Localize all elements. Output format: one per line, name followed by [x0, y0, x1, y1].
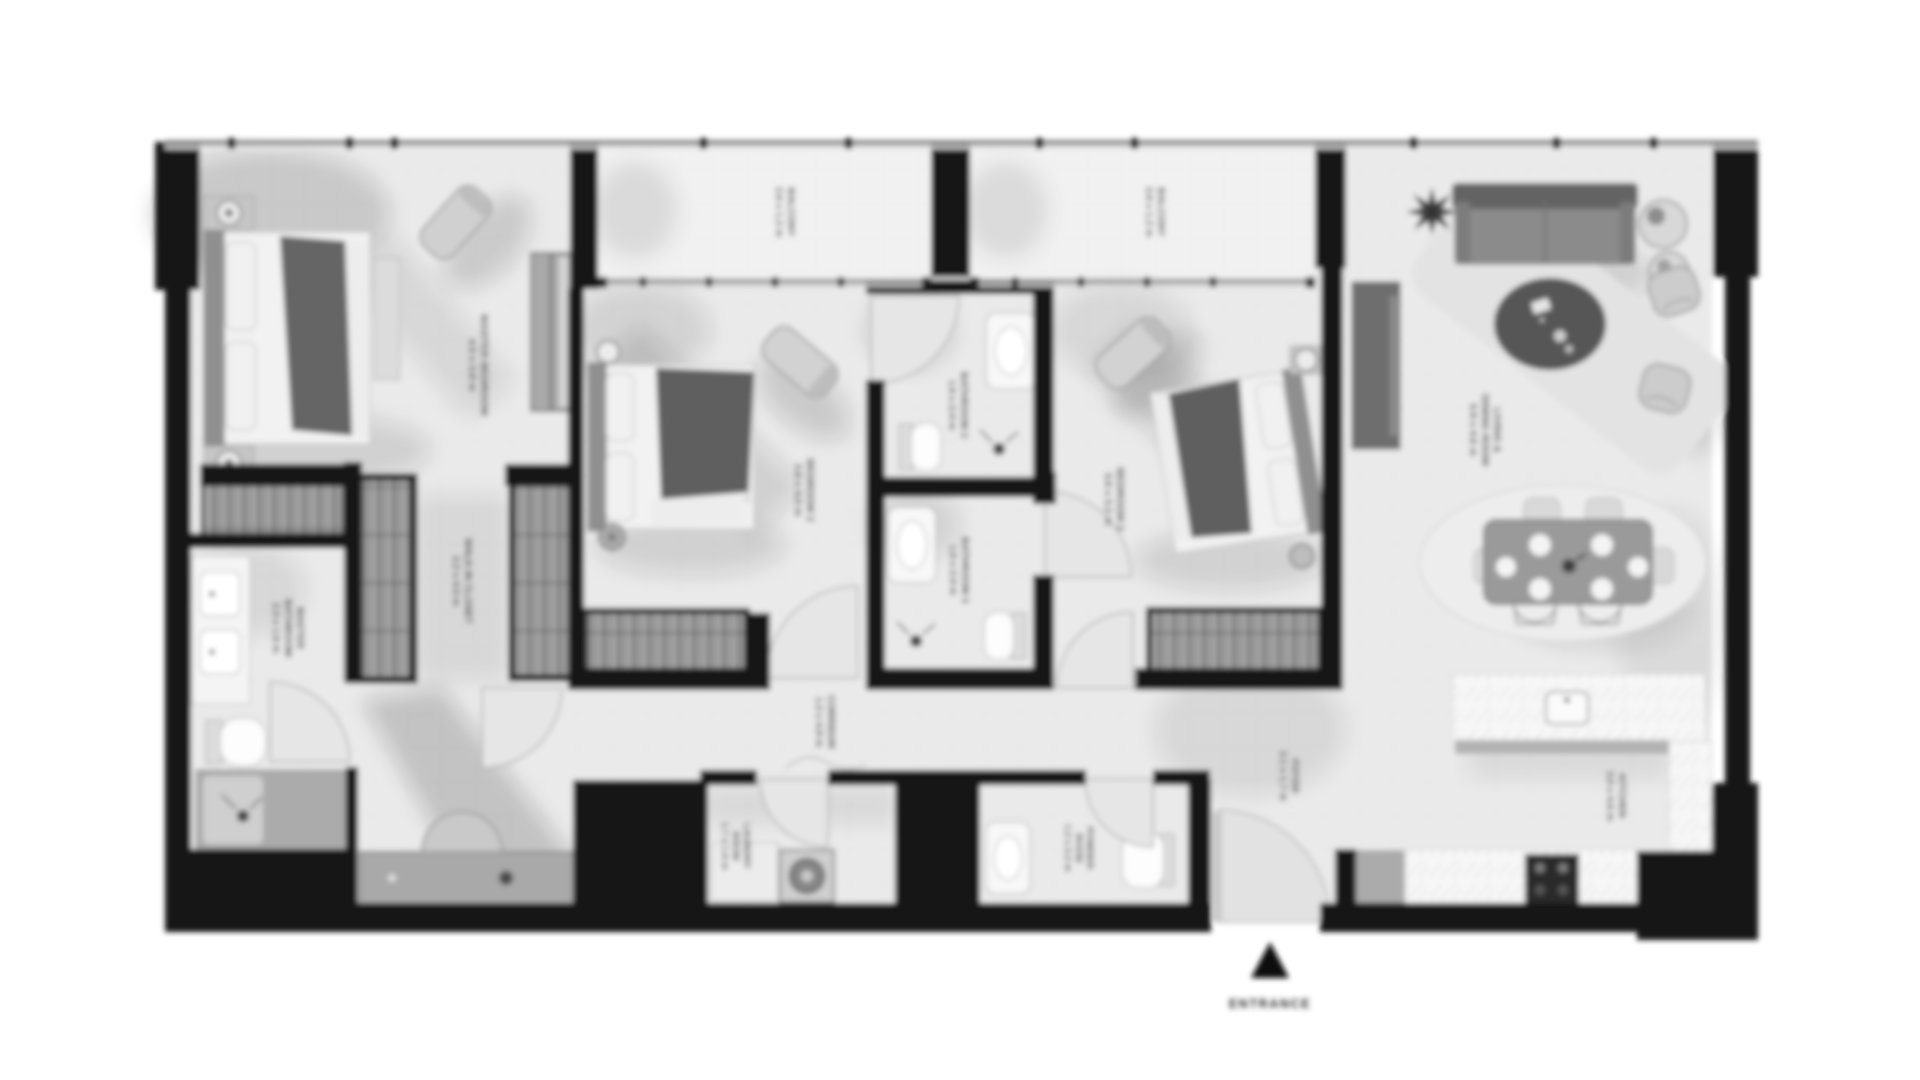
svg-text:BALCONY2.6 x 1.2 m: BALCONY2.6 x 1.2 m — [773, 187, 796, 238]
svg-text:BEDROOM 23.6 x 4.0 m: BEDROOM 23.6 x 4.0 m — [792, 458, 816, 522]
svg-text:BALCONY2.6 x 1.2 m: BALCONY2.6 x 1.2 m — [1143, 187, 1166, 238]
svg-text:KITCHEN3.0 x 4.6 m: KITCHEN3.0 x 4.6 m — [1604, 771, 1627, 822]
svg-text:BATHROOM 21.6 x 2.4 m: BATHROOM 21.6 x 2.4 m — [946, 372, 969, 439]
svg-text:ENTRANCE: ENTRANCE — [1229, 997, 1311, 1011]
svg-text:BATHROOM 31.6 x 2.4 m: BATHROOM 31.6 x 2.4 m — [947, 537, 970, 604]
svg-text:BEDROOM 33.6 x 3.2 m: BEDROOM 33.6 x 3.2 m — [1102, 467, 1126, 531]
svg-text:CORRIDOR1.2 x 4.9 m: CORRIDOR1.2 x 4.9 m — [813, 695, 836, 750]
svg-text:MASTERBATHROOM2.3 x 1.6 m: MASTERBATHROOM2.3 x 1.6 m — [270, 599, 305, 657]
